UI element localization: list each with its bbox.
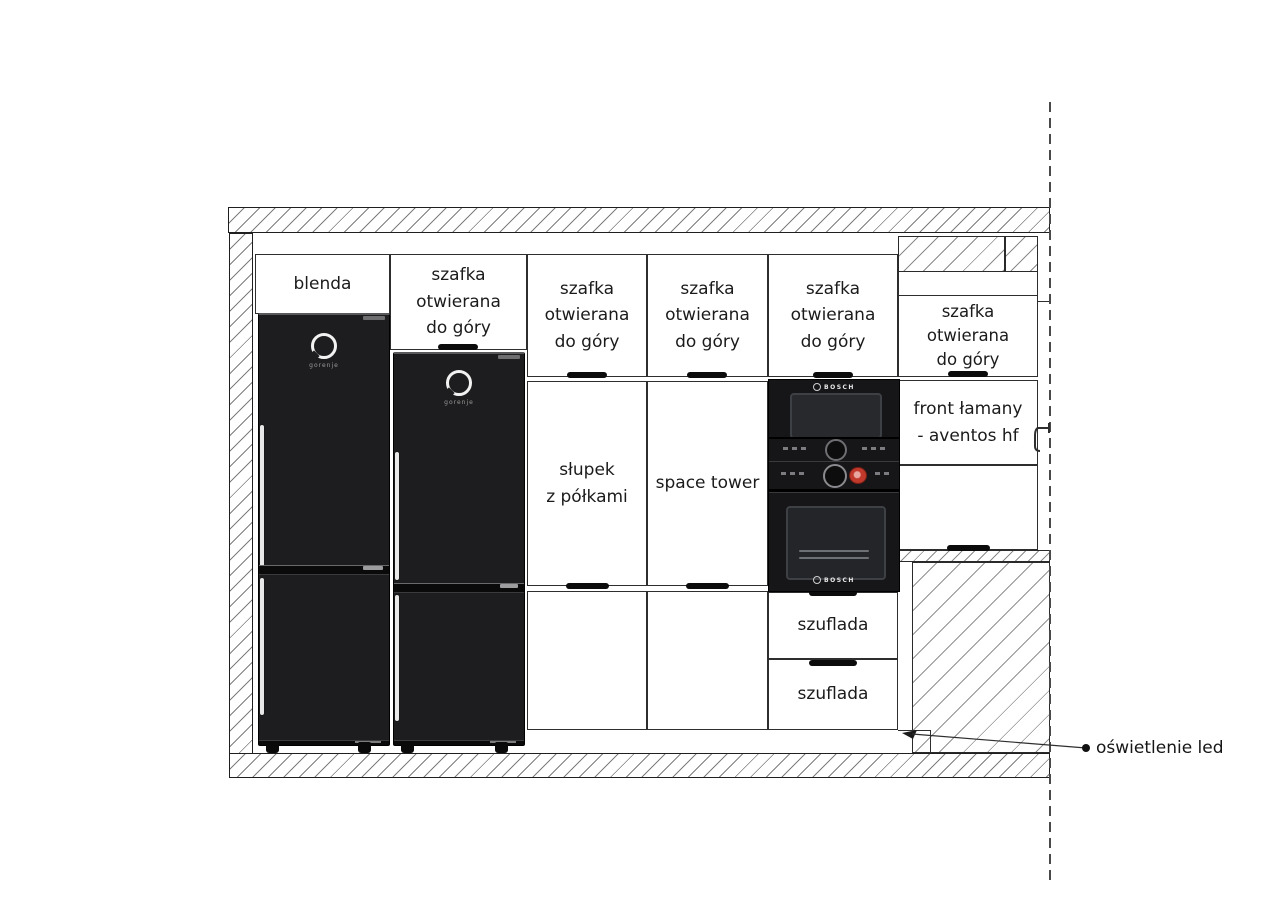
kitchen-elevation-drawing: blenda szafka otwierana do góry szafka o… <box>0 0 1280 906</box>
led-annotation-label: oświetlenie led <box>1096 738 1224 758</box>
door-handle-icon <box>1035 423 1050 451</box>
led-leader-line <box>902 730 1090 752</box>
annotation-overlay <box>0 0 1280 906</box>
